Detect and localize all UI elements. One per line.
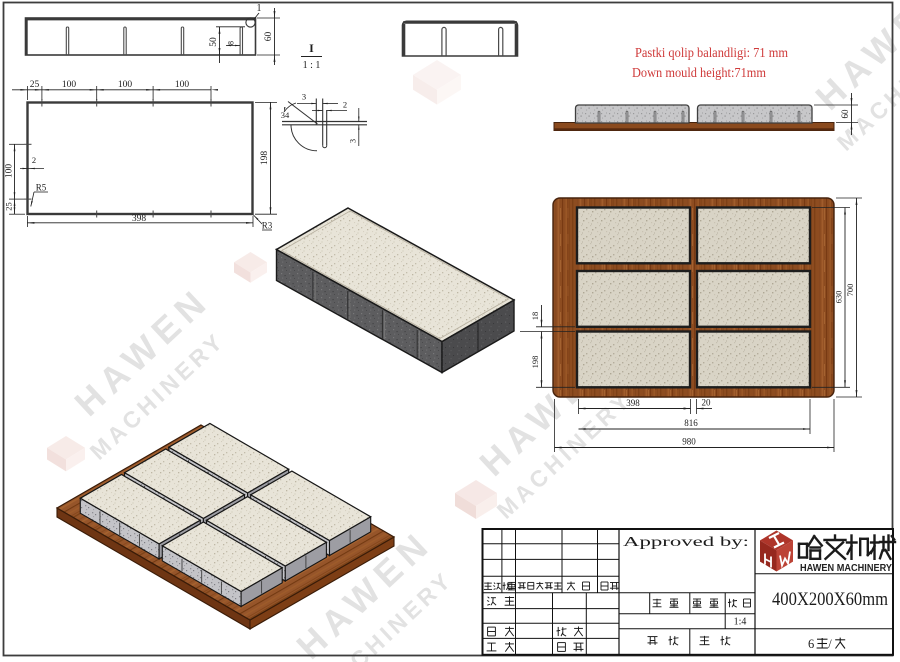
svg-text:3: 3 (302, 92, 306, 102)
svg-text:HAWEN MACHINERY: HAWEN MACHINERY (800, 562, 892, 574)
svg-text:1 : 1: 1 : 1 (303, 60, 321, 71)
svg-text:25: 25 (30, 80, 40, 90)
svg-text:100: 100 (175, 80, 190, 90)
svg-text:2: 2 (32, 155, 36, 165)
svg-text:100: 100 (5, 164, 15, 179)
svg-text:Down mould height:71mm: Down mould height:71mm (632, 66, 766, 81)
svg-text:400X200X60mm: 400X200X60mm (772, 589, 888, 610)
svg-text:Approved by:: Approved by: (623, 534, 749, 549)
svg-text:60: 60 (264, 32, 274, 42)
svg-text:100: 100 (62, 80, 77, 90)
svg-text:/: / (828, 637, 832, 651)
svg-text:6: 6 (808, 637, 814, 651)
svg-text:980: 980 (682, 437, 696, 447)
svg-text:R5: R5 (36, 183, 47, 193)
svg-text:2: 2 (343, 100, 347, 110)
svg-text:100: 100 (118, 80, 133, 90)
svg-text:I: I (309, 41, 314, 55)
svg-text:1:4: 1:4 (734, 617, 747, 628)
svg-text:18: 18 (530, 312, 540, 321)
svg-text:700: 700 (845, 284, 855, 297)
svg-text:398: 398 (132, 214, 147, 224)
svg-text:198: 198 (530, 356, 540, 369)
svg-text:816: 816 (684, 418, 698, 428)
svg-text:20: 20 (702, 398, 712, 408)
svg-text:630: 630 (834, 291, 844, 304)
svg-text:8: 8 (227, 41, 236, 45)
svg-text:198: 198 (260, 151, 270, 166)
svg-text:R3: R3 (262, 221, 273, 231)
svg-text:50: 50 (209, 37, 219, 47)
svg-text:60: 60 (840, 109, 850, 119)
svg-text:398: 398 (626, 398, 640, 408)
svg-text:Pastki qolip balandligi: 71 mm: Pastki qolip balandligi: 71 mm (635, 46, 788, 61)
svg-text:1: 1 (257, 3, 262, 14)
svg-text:34: 34 (281, 110, 290, 120)
svg-text:25: 25 (4, 202, 14, 211)
svg-text:3: 3 (348, 139, 358, 143)
